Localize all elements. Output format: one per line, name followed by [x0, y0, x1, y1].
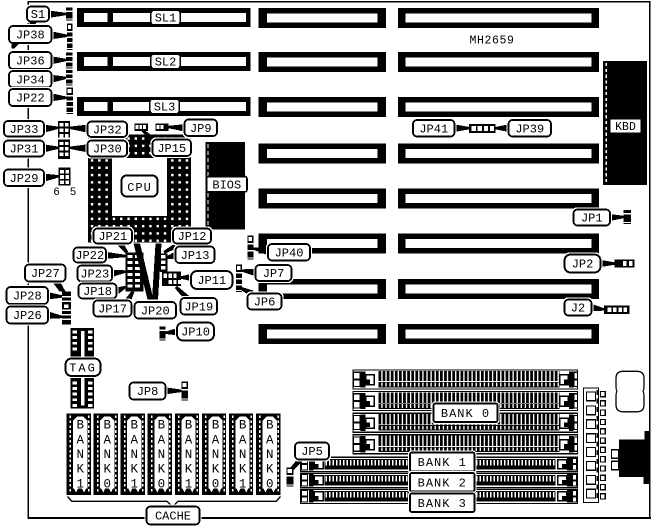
svg-text:JP33: JP33	[10, 123, 39, 137]
svg-text:J2: J2	[571, 302, 585, 316]
svg-text:JP28: JP28	[13, 290, 42, 304]
svg-text:BANK 1: BANK 1	[418, 456, 467, 470]
svg-text:K: K	[239, 463, 247, 477]
svg-text:N: N	[131, 448, 139, 462]
svg-text:JP8: JP8	[137, 385, 159, 399]
svg-text:A: A	[76, 433, 84, 447]
svg-text:JP29: JP29	[10, 172, 39, 186]
svg-text:K: K	[104, 463, 112, 477]
svg-text:BANK 3: BANK 3	[418, 497, 467, 511]
svg-text:0: 0	[212, 477, 220, 491]
svg-text:1: 1	[185, 477, 193, 491]
svg-text:JP32: JP32	[93, 123, 122, 137]
svg-text:JP13: JP13	[181, 249, 210, 263]
svg-text:N: N	[212, 448, 220, 462]
svg-text:K: K	[158, 463, 166, 477]
svg-text:JP21: JP21	[98, 230, 127, 244]
svg-text:N: N	[266, 448, 274, 462]
svg-text:A: A	[131, 433, 139, 447]
svg-text:B: B	[266, 419, 274, 433]
svg-text:JP22: JP22	[16, 92, 45, 106]
svg-text:S1: S1	[31, 8, 45, 22]
svg-text:N: N	[104, 448, 112, 462]
svg-text:JP41: JP41	[419, 122, 448, 136]
svg-text:N: N	[239, 448, 247, 462]
svg-text:A: A	[158, 433, 166, 447]
svg-text:MH2659: MH2659	[469, 35, 514, 48]
svg-text:B: B	[131, 419, 139, 433]
svg-text:A: A	[185, 433, 193, 447]
svg-text:CACHE: CACHE	[155, 510, 191, 524]
svg-text:B: B	[76, 419, 84, 433]
svg-text:1: 1	[76, 477, 84, 491]
svg-text:SL3: SL3	[154, 101, 176, 115]
svg-text:B: B	[239, 419, 247, 433]
svg-text:JP15: JP15	[157, 142, 186, 156]
svg-text:K: K	[131, 463, 139, 477]
svg-text:JP38: JP38	[16, 29, 45, 43]
svg-text:BIOS: BIOS	[212, 179, 241, 193]
svg-text:BANK 2: BANK 2	[418, 476, 467, 490]
svg-text:JP10: JP10	[181, 326, 210, 340]
svg-text:A: A	[212, 433, 220, 447]
svg-text:JP2: JP2	[572, 258, 594, 272]
svg-text:JP19: JP19	[184, 300, 213, 314]
svg-text:5: 5	[70, 187, 77, 199]
svg-text:JP1: JP1	[581, 212, 603, 226]
svg-text:KBD: KBD	[615, 121, 636, 134]
svg-text:JP23: JP23	[80, 268, 109, 282]
svg-text:K: K	[266, 463, 274, 477]
svg-text:JP30: JP30	[93, 143, 122, 157]
svg-text:CPU: CPU	[127, 181, 152, 195]
svg-text:JP9: JP9	[190, 122, 212, 136]
svg-text:JP39: JP39	[515, 122, 544, 136]
svg-text:JP20: JP20	[141, 304, 170, 318]
svg-text:0: 0	[158, 477, 166, 491]
svg-text:JP7: JP7	[263, 267, 285, 281]
svg-text:B: B	[158, 419, 166, 433]
svg-text:B: B	[185, 419, 193, 433]
svg-text:N: N	[158, 448, 166, 462]
svg-text:JP22: JP22	[75, 249, 104, 263]
svg-text:K: K	[212, 463, 220, 477]
svg-text:JP27: JP27	[31, 267, 60, 281]
svg-text:K: K	[185, 463, 193, 477]
svg-text:JP11: JP11	[197, 274, 226, 288]
svg-text:JP34: JP34	[16, 73, 45, 87]
svg-text:B: B	[104, 419, 112, 433]
svg-text:N: N	[76, 448, 84, 462]
svg-text:0: 0	[104, 477, 112, 491]
svg-text:JP36: JP36	[16, 55, 45, 69]
svg-text:JP6: JP6	[254, 296, 276, 310]
svg-text:JP18: JP18	[83, 285, 112, 299]
svg-text:K: K	[76, 463, 84, 477]
svg-text:SL2: SL2	[155, 56, 177, 70]
svg-text:JP40: JP40	[275, 246, 304, 260]
svg-text:JP31: JP31	[10, 143, 39, 157]
svg-text:6: 6	[53, 187, 60, 199]
svg-text:N: N	[185, 448, 193, 462]
svg-text:A: A	[239, 433, 247, 447]
svg-text:1: 1	[239, 477, 247, 491]
svg-text:A: A	[266, 433, 274, 447]
svg-text:1: 1	[131, 477, 139, 491]
svg-text:A: A	[104, 433, 112, 447]
svg-text:JP17: JP17	[98, 303, 127, 317]
svg-text:TAG: TAG	[69, 361, 97, 375]
svg-text:BANK 0: BANK 0	[441, 407, 490, 421]
svg-text:B: B	[212, 419, 220, 433]
svg-text:JP5: JP5	[301, 445, 323, 459]
svg-text:0: 0	[266, 477, 274, 491]
svg-text:JP12: JP12	[178, 230, 207, 244]
svg-text:JP26: JP26	[13, 309, 42, 323]
svg-text:SL1: SL1	[155, 12, 177, 26]
